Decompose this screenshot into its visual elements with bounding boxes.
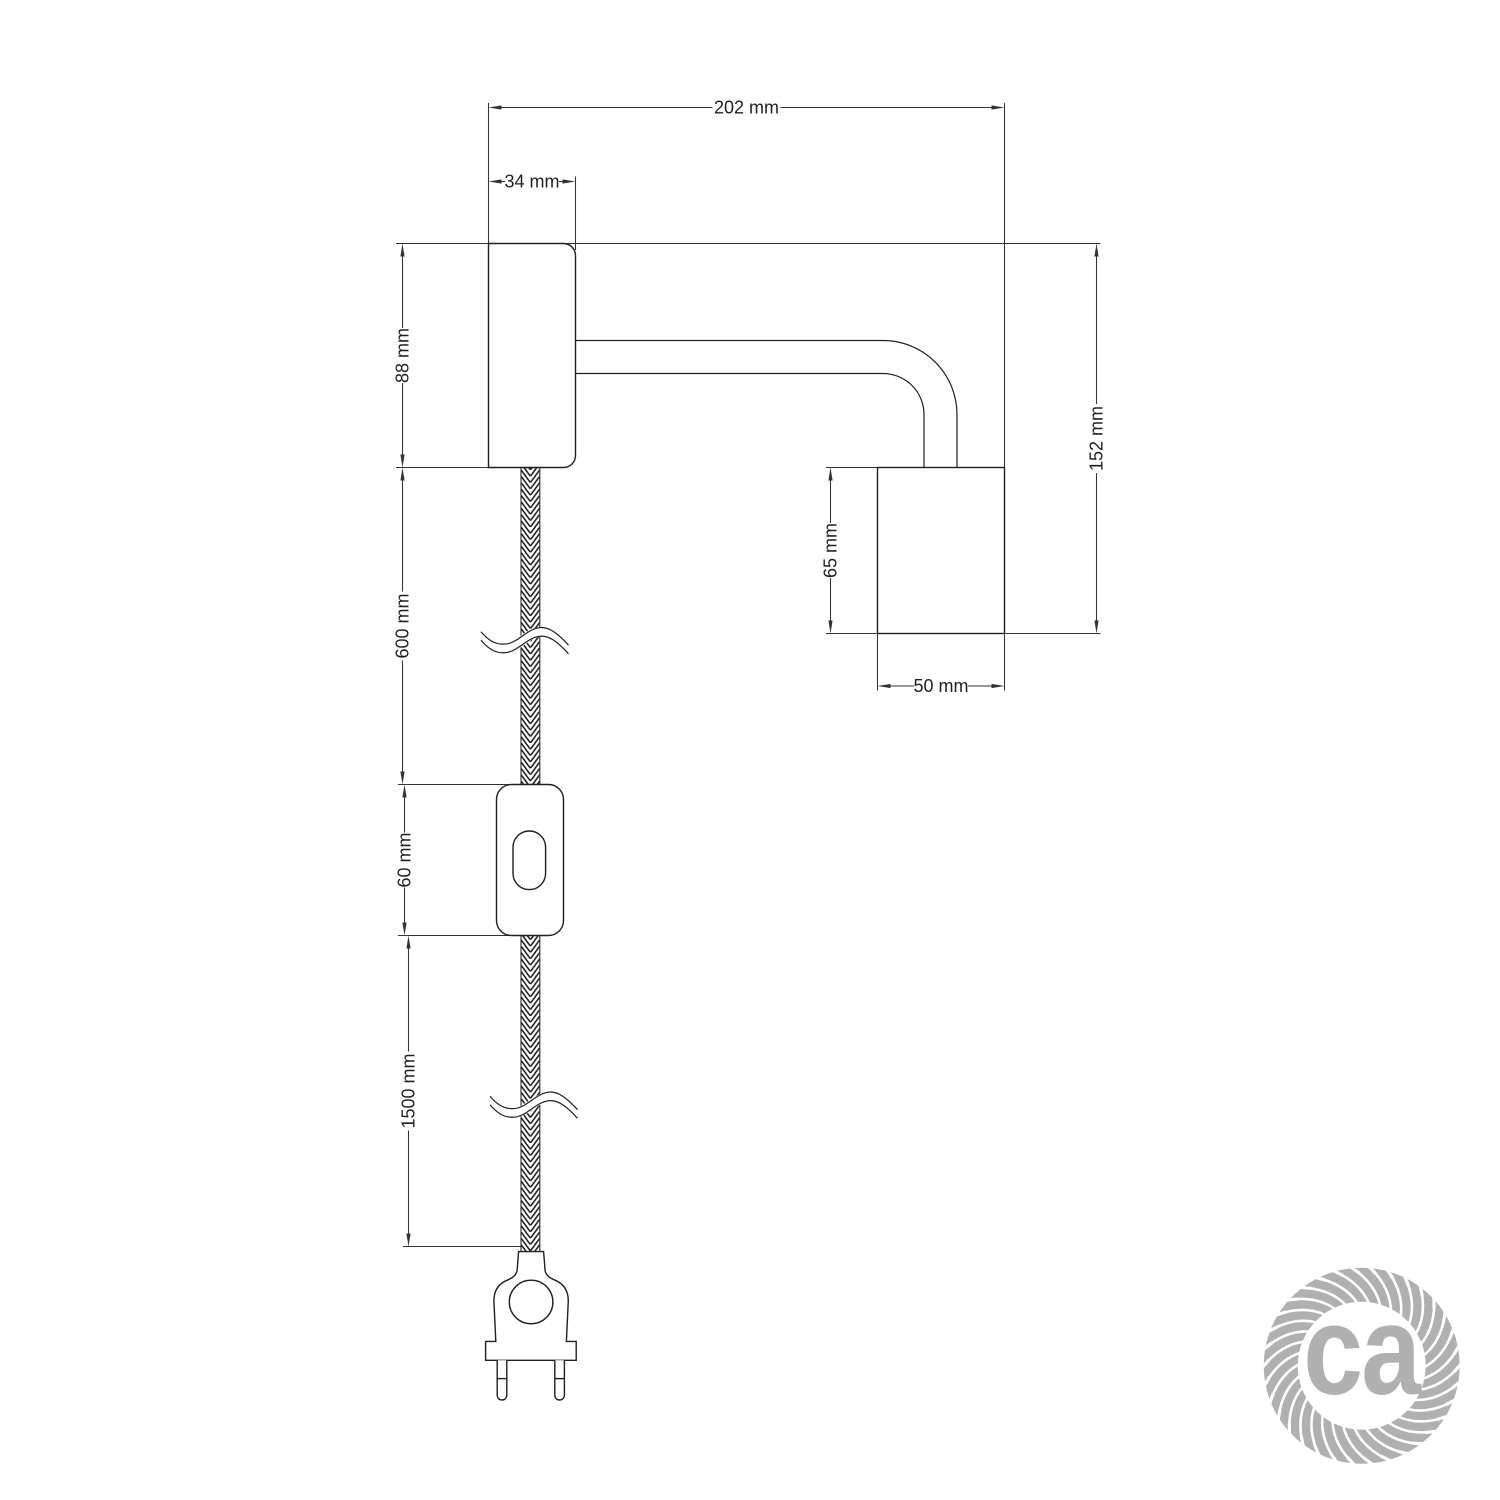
svg-text:202 mm: 202 mm bbox=[714, 98, 779, 118]
svg-text:ca: ca bbox=[1303, 1279, 1422, 1421]
svg-text:60 mm: 60 mm bbox=[395, 832, 415, 887]
svg-text:1500 mm: 1500 mm bbox=[399, 1053, 419, 1128]
svg-text:65 mm: 65 mm bbox=[821, 523, 841, 578]
svg-text:152 mm: 152 mm bbox=[1087, 406, 1107, 471]
svg-text:34 mm: 34 mm bbox=[504, 172, 559, 192]
svg-text:50 mm: 50 mm bbox=[913, 676, 968, 696]
svg-text:600 mm: 600 mm bbox=[393, 593, 413, 658]
svg-text:88 mm: 88 mm bbox=[393, 328, 413, 383]
